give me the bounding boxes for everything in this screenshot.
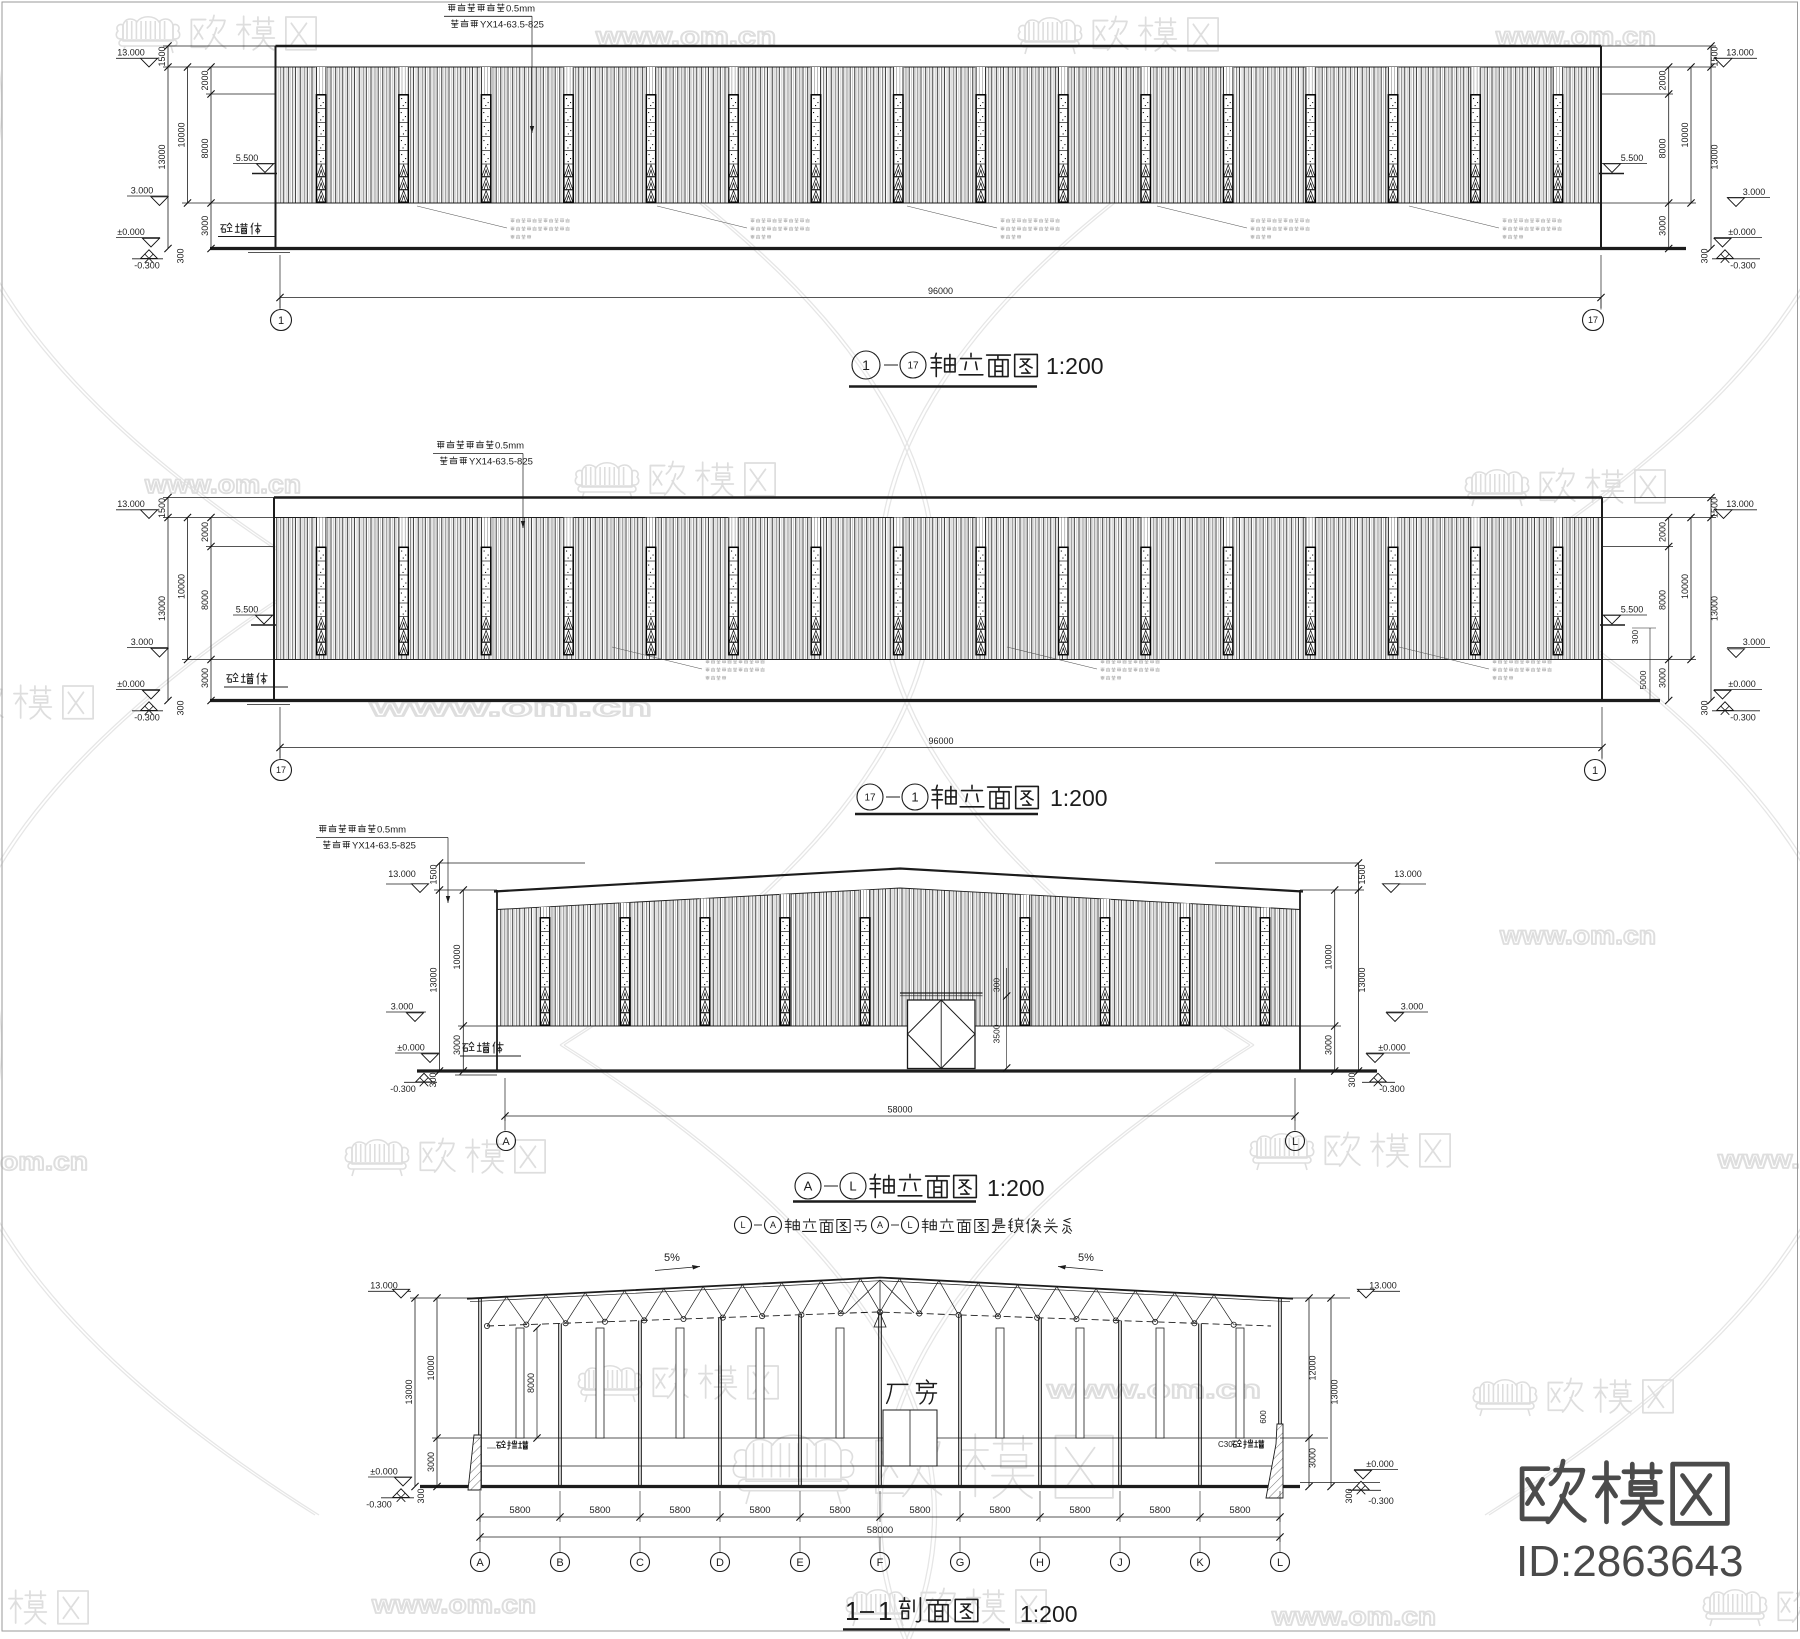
svg-text:3000: 3000 (1308, 1448, 1318, 1468)
svg-text:3.000: 3.000 (131, 637, 154, 647)
svg-text:5800: 5800 (669, 1505, 690, 1516)
svg-text:L: L (740, 1220, 745, 1230)
svg-text:1: 1 (1592, 765, 1598, 777)
svg-text:1:200: 1:200 (1046, 353, 1104, 379)
svg-text:ID:2863643: ID:2863643 (1516, 1537, 1744, 1586)
svg-text:5.500: 5.500 (1621, 153, 1644, 163)
svg-text:E: E (796, 1557, 803, 1569)
svg-text:300: 300 (1344, 1488, 1354, 1503)
svg-text:13000: 13000 (428, 967, 438, 992)
svg-text:300: 300 (992, 978, 1002, 992)
svg-text:1500: 1500 (1710, 498, 1720, 518)
svg-text:5%: 5% (664, 1252, 680, 1264)
svg-text:D: D (716, 1557, 724, 1569)
svg-text:5800: 5800 (909, 1505, 930, 1516)
svg-text:1500: 1500 (1710, 46, 1720, 66)
svg-text:K: K (1196, 1557, 1204, 1569)
svg-text:1: 1 (862, 357, 870, 373)
svg-text:13.000: 13.000 (1726, 48, 1754, 58)
svg-text:5800: 5800 (509, 1505, 530, 1516)
svg-text:13.000: 13.000 (117, 48, 145, 58)
svg-text:5800: 5800 (749, 1505, 770, 1516)
svg-text:-0.300: -0.300 (1730, 261, 1756, 271)
svg-text:10000: 10000 (176, 122, 186, 147)
svg-text:-0.300: -0.300 (1368, 1496, 1394, 1506)
svg-text:300: 300 (175, 700, 185, 715)
svg-text:H: H (1036, 1557, 1044, 1569)
svg-text:C: C (636, 1557, 644, 1569)
svg-text:12000: 12000 (1308, 1355, 1318, 1380)
svg-text:8000: 8000 (526, 1373, 536, 1393)
svg-text:10000: 10000 (426, 1355, 436, 1380)
svg-text:-0.300: -0.300 (366, 1500, 392, 1510)
svg-text:5%: 5% (1078, 1252, 1094, 1264)
svg-text:0.5mm: 0.5mm (506, 4, 535, 15)
svg-text:±0.000: ±0.000 (397, 1043, 424, 1053)
svg-text:300: 300 (416, 1488, 426, 1503)
svg-text:3000: 3000 (452, 1035, 462, 1055)
svg-text:5000: 5000 (1638, 670, 1648, 689)
svg-text:5.500: 5.500 (1621, 605, 1644, 615)
svg-text:L: L (1277, 1557, 1283, 1569)
svg-text:±0.000: ±0.000 (370, 1467, 397, 1477)
svg-text:5800: 5800 (589, 1505, 610, 1516)
svg-text:3000: 3000 (200, 668, 210, 688)
svg-text:C30: C30 (1218, 1440, 1233, 1449)
svg-text:10000: 10000 (1680, 574, 1690, 599)
svg-text:A: A (502, 1136, 510, 1148)
svg-text:3500: 3500 (992, 1024, 1002, 1043)
svg-text:10000: 10000 (1324, 944, 1334, 969)
svg-text:300: 300 (1347, 1072, 1357, 1087)
svg-text:1: 1 (278, 315, 284, 327)
svg-text:-0.300: -0.300 (134, 713, 160, 723)
svg-text:8000: 8000 (1658, 138, 1668, 158)
svg-text:0.5mm: 0.5mm (377, 825, 406, 836)
svg-text:www.: www. (1717, 1144, 1800, 1174)
svg-text:17: 17 (907, 361, 919, 372)
svg-text:300: 300 (175, 248, 185, 263)
svg-text:8000: 8000 (1658, 590, 1668, 610)
svg-text:www.om.cn: www.om.cn (371, 1589, 536, 1619)
svg-text:2000: 2000 (200, 522, 210, 542)
svg-text:600: 600 (1259, 1410, 1268, 1424)
svg-text:13.000: 13.000 (1726, 499, 1754, 509)
svg-text:13000: 13000 (1357, 967, 1367, 992)
svg-text:-0.300: -0.300 (390, 1084, 416, 1094)
svg-text:3000: 3000 (200, 216, 210, 236)
svg-text:YX14-63.5-825: YX14-63.5-825 (352, 841, 416, 852)
svg-text:300: 300 (1700, 248, 1710, 263)
svg-text:A: A (476, 1557, 484, 1569)
svg-text:B: B (556, 1557, 563, 1569)
svg-text:10000: 10000 (176, 574, 186, 599)
svg-text:F: F (877, 1557, 884, 1569)
svg-text:1:200: 1:200 (1020, 1601, 1078, 1627)
svg-text:13000: 13000 (157, 596, 167, 621)
svg-text:±0.000: ±0.000 (1728, 227, 1755, 237)
svg-text:13000: 13000 (404, 1379, 414, 1404)
svg-text:5.500: 5.500 (236, 153, 259, 163)
svg-text:58000: 58000 (887, 1105, 912, 1115)
svg-text:17: 17 (276, 765, 286, 775)
svg-text:96000: 96000 (928, 736, 953, 746)
svg-text:5800: 5800 (829, 1505, 850, 1516)
svg-text:5800: 5800 (1229, 1505, 1250, 1516)
svg-text:5800: 5800 (1149, 1505, 1170, 1516)
svg-text:1500: 1500 (157, 498, 167, 518)
svg-text:13000: 13000 (1710, 144, 1720, 169)
svg-text:10000: 10000 (452, 944, 462, 969)
svg-text:www.om.cn: www.om.cn (1499, 920, 1656, 950)
svg-text:±0.000: ±0.000 (1728, 679, 1755, 689)
svg-text:2000: 2000 (200, 70, 210, 90)
svg-text:±0.000: ±0.000 (117, 227, 144, 237)
svg-text:1:200: 1:200 (1050, 785, 1108, 811)
svg-text:5.500: 5.500 (236, 605, 259, 615)
svg-text:-0.300: -0.300 (134, 261, 160, 271)
svg-text:1:200: 1:200 (987, 1175, 1045, 1201)
svg-text:13000: 13000 (1330, 1379, 1340, 1404)
svg-text:3.000: 3.000 (1743, 637, 1766, 647)
svg-text:8000: 8000 (200, 138, 210, 158)
svg-text:13.000: 13.000 (388, 869, 416, 879)
svg-text:8000: 8000 (200, 590, 210, 610)
svg-text:300: 300 (1700, 700, 1710, 715)
svg-text:3000: 3000 (426, 1452, 436, 1472)
svg-text:G: G (956, 1557, 965, 1569)
svg-text:-0.300: -0.300 (1379, 1084, 1405, 1094)
svg-text:13.000: 13.000 (117, 499, 145, 509)
svg-text:L: L (907, 1220, 912, 1230)
svg-text:2000: 2000 (1658, 70, 1668, 90)
svg-text:13000: 13000 (1710, 596, 1720, 621)
svg-text:www.om.cn: www.om.cn (368, 692, 652, 722)
svg-text:±0.000: ±0.000 (1366, 1459, 1393, 1469)
svg-text:www.om.cn: www.om.cn (144, 469, 301, 499)
svg-text:3.000: 3.000 (391, 1002, 414, 1012)
svg-text:96000: 96000 (928, 286, 953, 296)
svg-text:17: 17 (1588, 315, 1598, 325)
svg-text:±0.000: ±0.000 (1378, 1043, 1405, 1053)
svg-text:1500: 1500 (428, 864, 438, 884)
svg-text:±0.000: ±0.000 (117, 679, 144, 689)
svg-text:3000: 3000 (1324, 1035, 1334, 1055)
svg-text:10000: 10000 (1680, 122, 1690, 147)
svg-text:A: A (770, 1220, 776, 1230)
svg-text:3.000: 3.000 (1401, 1002, 1424, 1012)
svg-text:5800: 5800 (1069, 1505, 1090, 1516)
svg-text:2000: 2000 (1658, 522, 1668, 542)
svg-text:1: 1 (845, 1596, 859, 1626)
svg-text:3000: 3000 (1658, 216, 1668, 236)
svg-text:J: J (1117, 1557, 1123, 1569)
svg-text:3000: 3000 (1658, 668, 1668, 688)
svg-text:1500: 1500 (157, 46, 167, 66)
svg-text:58000: 58000 (867, 1525, 893, 1536)
svg-text:YX14-63.5-825: YX14-63.5-825 (480, 20, 544, 31)
svg-text:3.000: 3.000 (131, 186, 154, 196)
svg-text:A: A (804, 1179, 813, 1194)
svg-text:0.5mm: 0.5mm (495, 441, 524, 452)
svg-text:300: 300 (1630, 630, 1640, 644)
svg-text:17: 17 (864, 793, 876, 804)
svg-text:L: L (1292, 1136, 1298, 1148)
svg-text:1: 1 (911, 790, 918, 805)
svg-text:om.cn: om.cn (0, 1146, 88, 1176)
svg-text:13000: 13000 (157, 144, 167, 169)
svg-text:L: L (849, 1179, 856, 1194)
svg-text:www.om.cn: www.om.cn (1271, 1601, 1436, 1631)
svg-text:A: A (877, 1220, 883, 1230)
svg-text:5800: 5800 (989, 1505, 1010, 1516)
svg-text:1: 1 (878, 1596, 892, 1626)
svg-text:1500: 1500 (1357, 864, 1367, 884)
svg-text:3.000: 3.000 (1743, 187, 1766, 197)
svg-text:13.000: 13.000 (1394, 869, 1422, 879)
svg-text:-0.300: -0.300 (1730, 713, 1756, 723)
